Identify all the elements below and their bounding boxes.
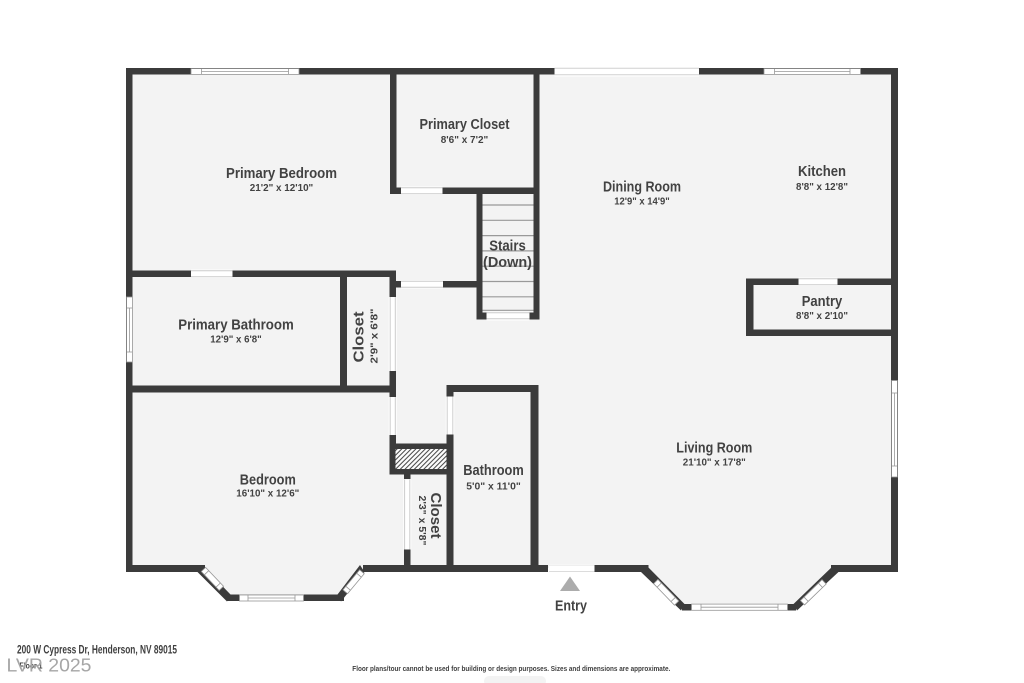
svg-text:Pantry: Pantry xyxy=(802,294,843,310)
svg-text:(Down): (Down) xyxy=(483,255,532,271)
svg-text:2'3" x 5'8": 2'3" x 5'8" xyxy=(416,496,427,546)
svg-text:Primary Bathroom: Primary Bathroom xyxy=(178,318,294,334)
svg-text:8'8" x 2'10": 8'8" x 2'10" xyxy=(796,311,848,322)
svg-text:12'9" x 14'9": 12'9" x 14'9" xyxy=(614,197,670,208)
svg-text:Primary Bedroom: Primary Bedroom xyxy=(226,166,337,182)
svg-text:5'0" x 11'0": 5'0" x 11'0" xyxy=(466,482,521,493)
svg-text:Bedroom: Bedroom xyxy=(240,473,296,489)
svg-text:8'6" x 7'2": 8'6" x 7'2" xyxy=(441,135,489,146)
svg-text:12'9" x 6'8": 12'9" x 6'8" xyxy=(210,335,262,346)
svg-text:Closet: Closet xyxy=(427,493,443,539)
svg-text:16'10" x 12'6": 16'10" x 12'6" xyxy=(236,489,299,500)
svg-text:Kitchen: Kitchen xyxy=(798,164,846,180)
svg-text:21'10" x 17'8": 21'10" x 17'8" xyxy=(683,458,746,469)
svg-text:Floor plans/tour cannot be use: Floor plans/tour cannot be used for buil… xyxy=(352,666,670,673)
svg-text:Living Room: Living Room xyxy=(676,441,752,457)
svg-text:8'8" x 12'8": 8'8" x 12'8" xyxy=(796,182,848,193)
svg-text:Bathroom: Bathroom xyxy=(463,463,524,479)
svg-text:LVR 2025: LVR 2025 xyxy=(7,654,92,675)
svg-text:Closet: Closet xyxy=(352,311,368,362)
svg-text:21'2" x 12'10": 21'2" x 12'10" xyxy=(250,183,314,194)
svg-text:Stairs: Stairs xyxy=(489,239,526,255)
svg-text:Entry: Entry xyxy=(555,599,587,615)
svg-text:Primary Closet: Primary Closet xyxy=(420,117,510,133)
svg-text:Dining Room: Dining Room xyxy=(603,180,681,196)
svg-text:2'9" x 6'8": 2'9" x 6'8" xyxy=(370,308,381,363)
